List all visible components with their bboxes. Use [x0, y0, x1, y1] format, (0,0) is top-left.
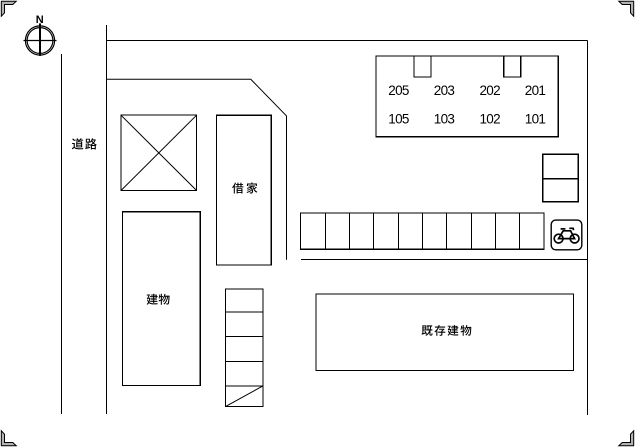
svg-text:201: 201 [525, 83, 546, 98]
svg-text:105: 105 [388, 111, 409, 126]
svg-text:103: 103 [434, 111, 455, 126]
svg-text:202: 202 [479, 83, 500, 98]
svg-text:205: 205 [388, 83, 409, 98]
svg-text:203: 203 [434, 83, 455, 98]
svg-text:102: 102 [479, 111, 500, 126]
svg-text:N: N [36, 14, 44, 26]
svg-text:101: 101 [525, 111, 546, 126]
